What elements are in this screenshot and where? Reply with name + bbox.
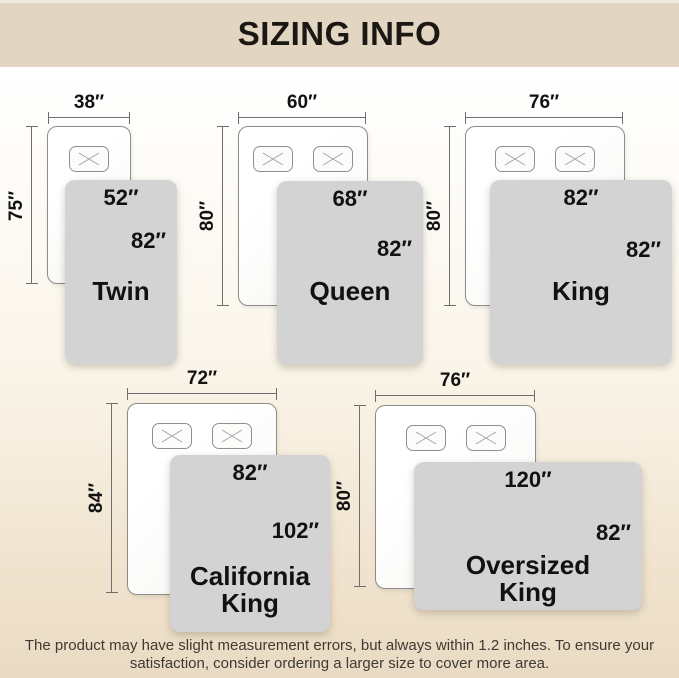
blanket-width-label: 52″ <box>65 185 177 211</box>
size-name-label: Oversized King <box>444 552 612 606</box>
pillow-icon <box>406 425 446 451</box>
length-dimension-line <box>449 126 450 306</box>
blanket-width-label: 82″ <box>170 460 330 486</box>
bed-width-label: 72″ <box>127 367 277 391</box>
pillow-x-icon <box>161 429 183 443</box>
bed-length-label: 80″ <box>197 194 219 238</box>
blanket: 82″ 82″ King <box>490 180 672 364</box>
blanket-length-label: 82″ <box>596 520 631 546</box>
footer-note-line1: The product may have slight measurement … <box>0 637 679 655</box>
blanket: 68″ 82″ Queen <box>277 181 423 365</box>
page-title: SIZING INFO <box>238 15 442 53</box>
width-dimension-line <box>127 393 277 394</box>
pillow-icon <box>555 146 595 172</box>
bed-length-label: 75″ <box>6 184 28 228</box>
blanket: 52″ 82″ Twin <box>65 180 177 364</box>
blanket: 120″ 82″ Oversized King <box>414 462 642 610</box>
blanket-length-label: 102″ <box>272 518 319 544</box>
bed-width-label: 76″ <box>375 369 535 393</box>
width-dimension-line <box>465 117 623 118</box>
pillow-icon <box>466 425 506 451</box>
length-dimension-line <box>222 126 223 306</box>
pillow-row <box>128 423 276 449</box>
bed-width-label: 60″ <box>238 91 366 115</box>
header-band: SIZING INFO <box>0 0 679 67</box>
length-dimension-line <box>111 403 112 593</box>
blanket-length-label: 82″ <box>377 236 412 262</box>
blanket-length-label: 82″ <box>626 237 661 263</box>
pillow-x-icon <box>504 152 526 166</box>
pillow-x-icon <box>221 429 243 443</box>
length-dimension-line <box>31 126 32 284</box>
pillow-icon <box>212 423 252 449</box>
pillow-x-icon <box>78 152 100 166</box>
width-dimension-line <box>238 117 366 118</box>
blanket-width-label: 68″ <box>277 186 423 212</box>
pillow-icon <box>253 146 293 172</box>
size-name-label: Twin <box>65 278 177 305</box>
pillow-row <box>48 146 130 172</box>
footer-note: The product may have slight measurement … <box>0 637 679 673</box>
bed-width-label: 76″ <box>465 91 623 115</box>
pillow-row <box>239 146 367 172</box>
blanket: 82″ 102″ California King <box>170 455 330 632</box>
pillow-x-icon <box>415 431 437 445</box>
pillow-x-icon <box>564 152 586 166</box>
blanket-width-label: 82″ <box>490 185 672 211</box>
pillow-icon <box>69 146 109 172</box>
pillow-icon <box>495 146 535 172</box>
bed-length-label: 80″ <box>424 194 446 238</box>
width-dimension-line <box>375 395 535 396</box>
pillow-x-icon <box>475 431 497 445</box>
pillow-row <box>376 425 535 451</box>
pillow-icon <box>152 423 192 449</box>
bed-width-label: 38″ <box>48 91 130 115</box>
sizing-infographic: SIZING INFO 38″ 75″ 52″ 82″ Twin 60″ <box>0 0 679 678</box>
pillow-x-icon <box>262 152 284 166</box>
length-dimension-line <box>359 405 360 587</box>
bed-length-label: 84″ <box>86 476 108 520</box>
size-name-label: Queen <box>277 278 423 305</box>
blanket-width-label: 120″ <box>414 467 642 493</box>
pillow-icon <box>313 146 353 172</box>
pillow-x-icon <box>322 152 344 166</box>
bed-length-label: 80″ <box>334 474 356 518</box>
width-dimension-line <box>48 117 130 118</box>
blanket-length-label: 82″ <box>131 228 166 254</box>
pillow-row <box>466 146 624 172</box>
size-name-label: California King <box>180 563 320 617</box>
size-name-label: King <box>490 278 672 305</box>
footer-note-line2: satisfaction, consider ordering a larger… <box>0 655 679 673</box>
